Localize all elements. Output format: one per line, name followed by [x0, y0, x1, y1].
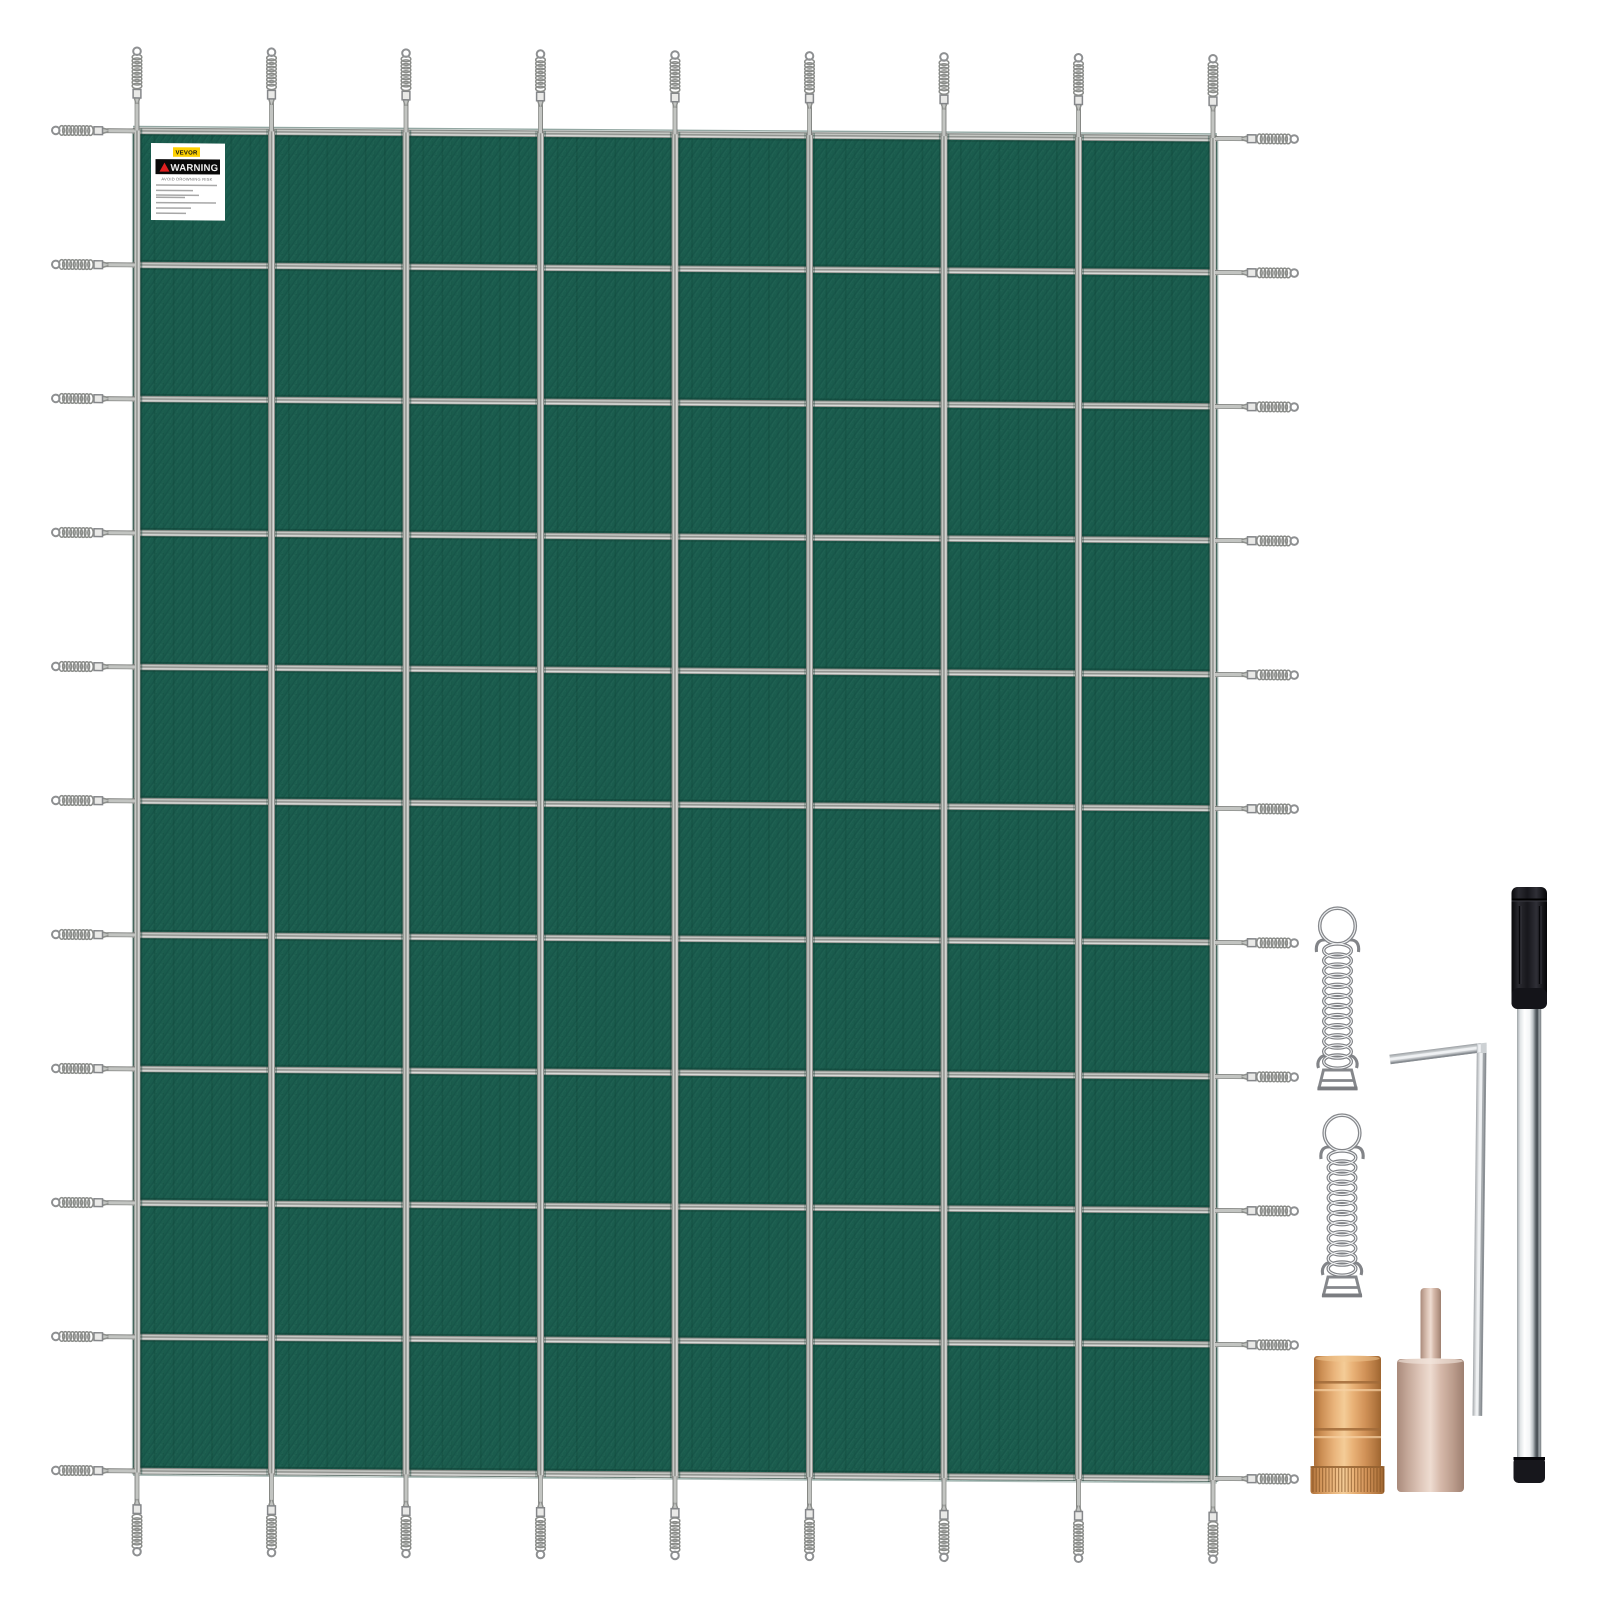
svg-text:AVOID DROWNING RISK: AVOID DROWNING RISK — [161, 176, 212, 181]
svg-text:VEVOR: VEVOR — [175, 150, 197, 156]
svg-text:WARNING: WARNING — [171, 163, 219, 174]
